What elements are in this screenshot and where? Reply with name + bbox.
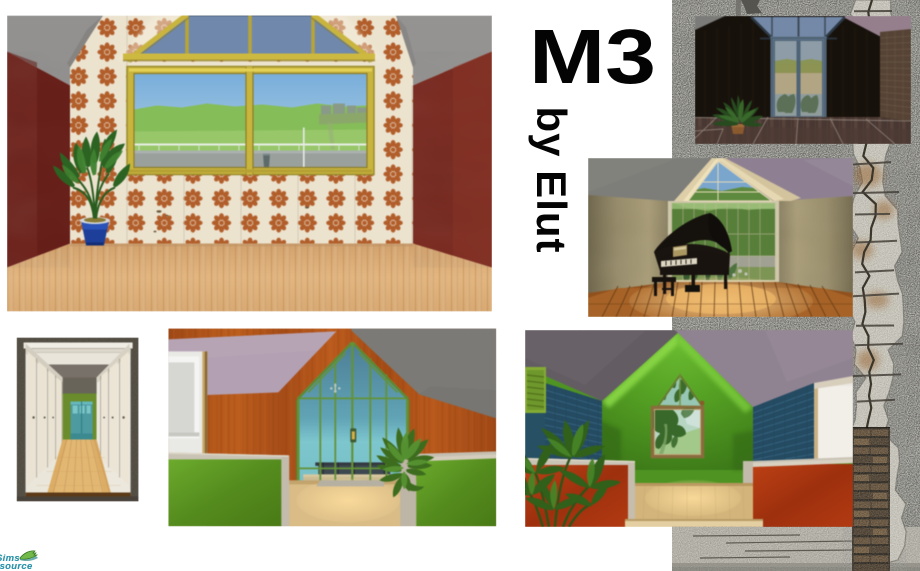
svg-text:esource: esource: [0, 561, 33, 571]
svg-text:M3: M3: [529, 14, 656, 100]
svg-text:by Elut: by Elut: [528, 107, 575, 254]
